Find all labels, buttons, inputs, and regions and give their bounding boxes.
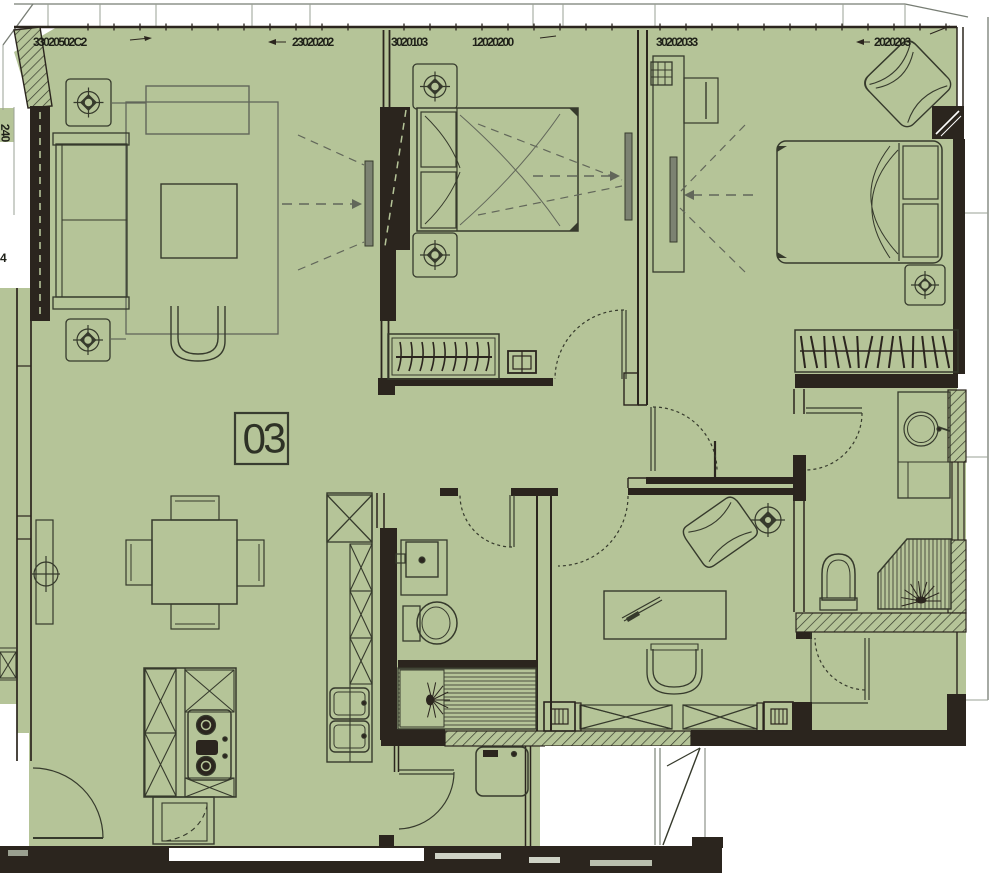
svg-text:2020203: 2020203 bbox=[874, 35, 911, 49]
svg-text:3020103: 3020103 bbox=[391, 35, 428, 49]
svg-text:30202033: 30202033 bbox=[656, 35, 699, 49]
svg-text:03: 03 bbox=[242, 414, 286, 462]
svg-text:240: 240 bbox=[0, 124, 13, 143]
svg-text:4: 4 bbox=[0, 251, 7, 265]
svg-text:33020502C2: 33020502C2 bbox=[33, 35, 88, 49]
svg-text:23020202: 23020202 bbox=[292, 35, 335, 49]
svg-text:12020200: 12020200 bbox=[472, 35, 515, 49]
